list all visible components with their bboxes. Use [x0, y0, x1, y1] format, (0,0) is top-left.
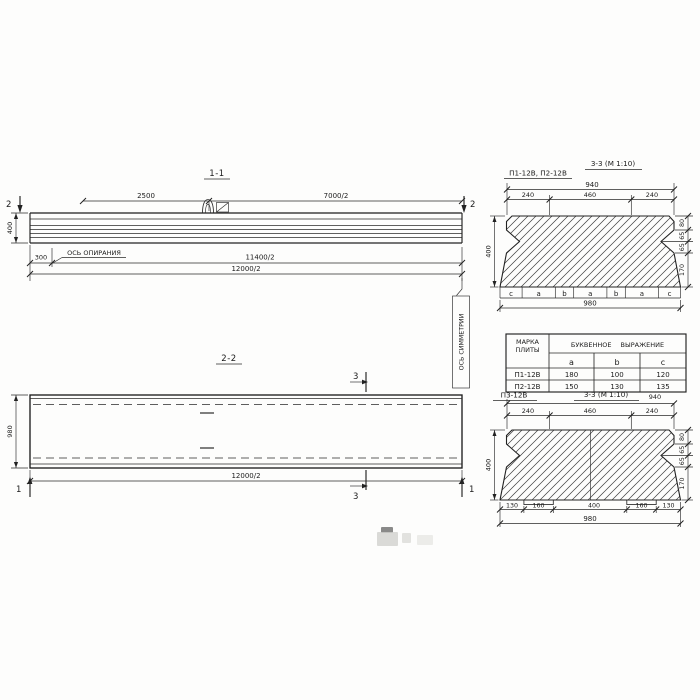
section-top-marks-label: П1-12В, П2-12В: [509, 169, 567, 178]
dim-65b-bottom: 65: [679, 457, 686, 465]
letter-a2: a: [588, 290, 592, 298]
section-3-3-p3: П3-12В 3-3 (М 1:10) 940 240 460 240: [485, 390, 694, 527]
table-row-p1: П1-12В 180 100 120: [515, 371, 670, 379]
section-top-cross-section: [500, 216, 681, 287]
dim-80-bottom: 80: [679, 433, 686, 441]
section-bottom-title: 3-3 (М 1:10): [584, 390, 628, 399]
cut-label-3-top: 3: [353, 372, 359, 382]
letter-b2: b: [614, 290, 619, 298]
dim-160-left: 160: [532, 503, 544, 510]
section-top-letter-row: c a b a b a c: [500, 287, 681, 298]
letter-c1: c: [509, 290, 513, 298]
blueprint-page: 1-1 2500 7000/2 2 2: [0, 0, 700, 700]
cut-label-2-left: 2: [6, 200, 12, 210]
cell-p1-a: 180: [565, 371, 578, 379]
dim-7000-half: 7000/2: [324, 192, 349, 200]
dim-170-bottom: 170: [679, 477, 686, 489]
section-bottom-mark-label: П3-12В: [501, 391, 528, 400]
section-top-total-width-dimension: 980: [497, 300, 684, 313]
letter-a1: a: [537, 290, 541, 298]
section-3-3-p1-p2: 3-3 (М 1:10) П1-12В, П2-12В 940 240 460 …: [485, 159, 694, 312]
support-axis-label: ОСЬ ОПИРАНИЯ: [67, 249, 121, 257]
table-col-b: b: [614, 358, 619, 367]
cell-mark-p1: П1-12В: [515, 371, 541, 379]
cell-p1-c: 120: [656, 371, 669, 379]
dim-130-right: 130: [662, 503, 674, 510]
letter-c2: c: [668, 290, 672, 298]
letter-b1: b: [562, 290, 567, 298]
dim-940-top: 940: [585, 181, 598, 189]
loop-position-tag: [217, 203, 229, 213]
view-2-2: 2-2 3 3 1: [6, 278, 475, 502]
dim-300: 300: [35, 254, 47, 262]
symmetry-axis-label: ОСЬ СИММЕТРИИ: [459, 313, 466, 370]
dim-65a-top: 65: [679, 232, 686, 240]
dim-2500: 2500: [137, 192, 155, 200]
cell-p2-c: 135: [656, 383, 669, 391]
dim-130-left: 130: [506, 503, 518, 510]
dim-460-top: 460: [584, 191, 596, 199]
cell-p2-a: 150: [565, 383, 578, 391]
dim-65a-bottom: 65: [679, 446, 686, 454]
view-1-1-lower-dimensions: 300 ОСЬ ОПИРАНИЯ 11400/2 12000/2: [27, 245, 465, 281]
cut-marker-3-bottom: 3: [350, 470, 368, 502]
view-2-2-length-dimension: 12000/2: [27, 470, 465, 485]
cell-p1-b: 100: [610, 371, 623, 379]
dim-65b-top: 65: [679, 243, 686, 251]
dim-170-top: 170: [679, 264, 686, 276]
table-header-mark-line2: ПЛИТЫ: [515, 346, 540, 354]
slab-plan-body: [30, 395, 462, 468]
dim-240-right-top: 240: [646, 191, 658, 199]
marks-table: МАРКА ПЛИТЫ БУКВЕННОЕ ВЫРАЖЕНИЕ a b c П1…: [506, 334, 686, 392]
section-top-title: 3-3 (М 1:10): [591, 159, 635, 168]
table-col-a: a: [569, 358, 574, 367]
dim-980-top-section: 980: [583, 300, 596, 308]
view-2-2-width-dimension: 980: [6, 395, 28, 468]
dim-400-top-section: 400: [485, 245, 493, 257]
view-1-1-height-dimension: 400: [6, 213, 28, 243]
table-col-c: c: [661, 358, 665, 367]
dim-940-bottom: 940: [649, 393, 661, 401]
dim-460-bottom: 460: [584, 407, 596, 415]
dim-240-left-bottom: 240: [522, 407, 534, 415]
scan-smudges: [377, 527, 433, 546]
dim-240-right-bottom: 240: [646, 407, 658, 415]
engineering-drawing-canvas: 1-1 2500 7000/2 2 2: [0, 0, 700, 700]
table-header-expression: БУКВЕННОЕ ВЫРАЖЕНИЕ: [571, 341, 664, 349]
dim-980-v22: 980: [6, 425, 14, 437]
dim-80-top: 80: [679, 219, 686, 227]
dim-400-bottom-section: 400: [485, 459, 493, 471]
dim-400-v11: 400: [6, 222, 14, 234]
letter-a3: a: [640, 290, 644, 298]
view-1-1-title: 1-1: [209, 169, 224, 179]
view-1-1: 1-1 2500 7000/2 2 2: [6, 169, 476, 281]
cut-label-1-right: 1: [469, 485, 475, 495]
slab-longitudinal-body: [30, 213, 462, 243]
dim-980-bottom-section: 980: [583, 515, 596, 523]
cut-marker-2-left: 2: [6, 196, 23, 213]
cut-label-1-left: 1: [16, 485, 22, 495]
cut-marker-3-top: 3: [350, 372, 368, 392]
view-1-1-top-dimension: 2500 7000/2: [80, 192, 465, 211]
section-bottom-lower-dimensions: 130 160 400 160 130 980: [497, 502, 684, 527]
view-2-2-title: 2-2: [221, 354, 236, 364]
cut-label-2-right: 2: [470, 200, 476, 210]
dim-160-right: 160: [635, 503, 647, 510]
table-header-mark-line1: МАРКА: [516, 338, 540, 346]
cut-marker-2-right: 2: [461, 196, 476, 213]
dim-400-mid: 400: [588, 503, 600, 510]
cut-label-3-bottom: 3: [353, 492, 359, 502]
dim-12000-half-v22: 12000/2: [231, 472, 260, 480]
dim-11400-half: 11400/2: [245, 254, 274, 262]
symmetry-axis-flag: ОСЬ СИММЕТРИИ: [453, 278, 470, 388]
section-top-upper-dimensions: 940 240 460 240: [504, 181, 677, 215]
dim-12000-half-v11: 12000/2: [231, 265, 260, 273]
dim-240-left-top: 240: [522, 191, 534, 199]
